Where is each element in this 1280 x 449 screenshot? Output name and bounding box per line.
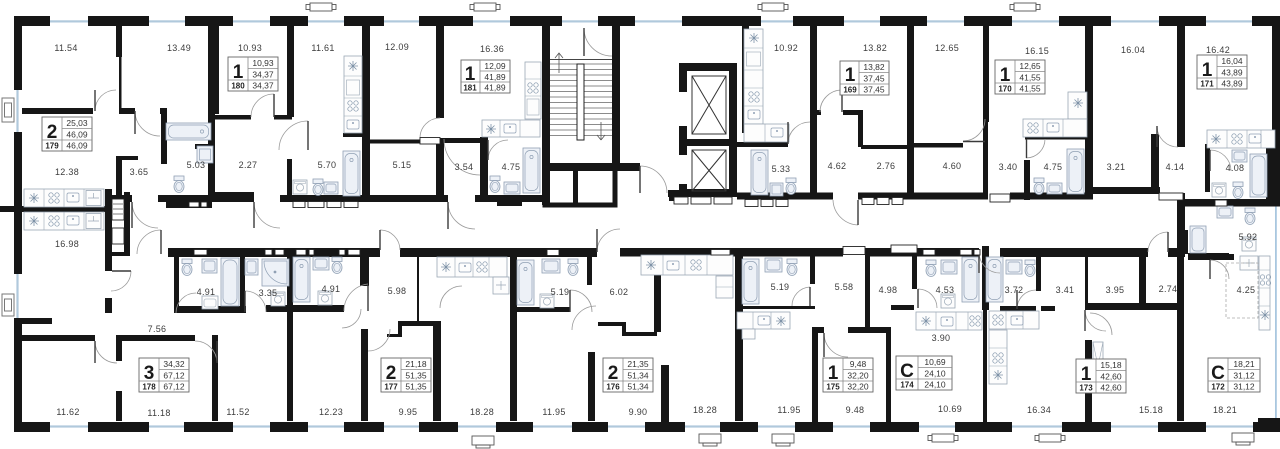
svg-text:10,69: 10,69 (924, 357, 946, 367)
svg-text:67,12: 67,12 (163, 382, 185, 392)
svg-text:16,04: 16,04 (1221, 56, 1243, 66)
svg-text:4.60: 4.60 (943, 161, 962, 171)
svg-text:51,34: 51,34 (627, 371, 649, 381)
svg-text:C: C (900, 361, 914, 382)
svg-text:5.19: 5.19 (771, 282, 790, 292)
svg-text:3.95: 3.95 (1106, 285, 1125, 295)
svg-text:3: 3 (144, 363, 155, 384)
svg-text:34,32: 34,32 (163, 359, 185, 369)
svg-text:3.54: 3.54 (455, 162, 474, 172)
svg-text:6.02: 6.02 (610, 287, 629, 297)
svg-text:34,37: 34,37 (252, 81, 274, 91)
svg-text:1: 1 (845, 65, 856, 86)
svg-text:4.75: 4.75 (502, 162, 521, 172)
svg-text:1: 1 (1081, 364, 1092, 385)
svg-text:11.54: 11.54 (54, 43, 77, 53)
svg-text:7.56: 7.56 (148, 324, 167, 334)
svg-text:176: 176 (606, 383, 620, 392)
svg-text:34,37: 34,37 (252, 70, 274, 80)
svg-text:12.09: 12.09 (385, 42, 409, 52)
svg-text:51,34: 51,34 (627, 382, 649, 392)
svg-text:41,55: 41,55 (1019, 73, 1041, 83)
svg-text:16.34: 16.34 (1027, 405, 1051, 415)
svg-text:5.70: 5.70 (318, 160, 337, 170)
svg-text:43,89: 43,89 (1221, 79, 1243, 89)
svg-text:5.03: 5.03 (187, 160, 206, 170)
svg-text:16.04: 16.04 (1121, 45, 1145, 55)
svg-text:11.52: 11.52 (226, 407, 249, 417)
svg-text:10.92: 10.92 (774, 43, 798, 53)
svg-text:10.69: 10.69 (938, 404, 962, 414)
svg-text:2.74: 2.74 (1159, 284, 1178, 294)
svg-text:5.92: 5.92 (1239, 232, 1258, 242)
svg-text:178: 178 (142, 383, 156, 392)
svg-text:4.91: 4.91 (197, 287, 216, 297)
svg-text:11.61: 11.61 (311, 43, 334, 53)
svg-text:9.48: 9.48 (846, 405, 865, 415)
svg-text:1: 1 (828, 363, 839, 384)
svg-text:51,35: 51,35 (405, 371, 427, 381)
svg-text:179: 179 (45, 142, 59, 151)
svg-text:2.76: 2.76 (877, 161, 896, 171)
svg-text:C: C (1211, 363, 1225, 384)
svg-text:2.27: 2.27 (239, 160, 258, 170)
svg-text:5.15: 5.15 (393, 160, 412, 170)
svg-text:21,18: 21,18 (405, 359, 427, 369)
svg-text:4.08: 4.08 (1226, 163, 1245, 173)
svg-text:9.95: 9.95 (399, 407, 418, 417)
svg-text:16.98: 16.98 (55, 239, 79, 249)
svg-text:9,48: 9,48 (850, 359, 867, 369)
svg-text:18.28: 18.28 (470, 407, 494, 417)
svg-text:4.91: 4.91 (322, 284, 341, 294)
svg-text:5.19: 5.19 (551, 287, 570, 297)
svg-text:169: 169 (843, 86, 857, 95)
svg-text:16.36: 16.36 (480, 44, 504, 54)
svg-text:18,21: 18,21 (1233, 359, 1255, 369)
svg-text:9.90: 9.90 (629, 407, 648, 417)
svg-text:32,20: 32,20 (847, 371, 869, 381)
svg-text:3.65: 3.65 (130, 167, 149, 177)
svg-text:2: 2 (386, 363, 397, 384)
svg-text:46,09: 46,09 (66, 130, 88, 140)
svg-text:4.25: 4.25 (1237, 285, 1256, 295)
svg-text:4.53: 4.53 (936, 285, 955, 295)
svg-text:18.28: 18.28 (693, 405, 717, 415)
svg-text:172: 172 (1211, 383, 1225, 392)
svg-text:42,60: 42,60 (1100, 383, 1122, 393)
svg-text:12.65: 12.65 (935, 43, 959, 53)
svg-text:13,82: 13,82 (863, 62, 885, 72)
svg-text:21,35: 21,35 (627, 359, 649, 369)
svg-text:25,03: 25,03 (66, 118, 88, 128)
svg-text:24,10: 24,10 (924, 380, 946, 390)
svg-text:1: 1 (233, 62, 244, 83)
svg-text:67,12: 67,12 (163, 371, 185, 381)
svg-text:12,09: 12,09 (484, 61, 506, 71)
svg-text:5.58: 5.58 (835, 282, 854, 292)
svg-text:10.93: 10.93 (238, 43, 262, 53)
svg-text:10,93: 10,93 (252, 58, 274, 68)
svg-text:15,18: 15,18 (1100, 360, 1122, 370)
svg-text:2: 2 (608, 363, 619, 384)
svg-text:5.33: 5.33 (772, 164, 791, 174)
svg-text:181: 181 (463, 84, 477, 93)
svg-text:41,55: 41,55 (1019, 84, 1041, 94)
svg-text:2: 2 (47, 122, 58, 143)
svg-text:174: 174 (900, 381, 914, 390)
svg-text:4.14: 4.14 (1166, 162, 1185, 172)
svg-text:43,89: 43,89 (1221, 68, 1243, 78)
svg-text:12,65: 12,65 (1019, 61, 1041, 71)
svg-text:16.42: 16.42 (1206, 45, 1230, 55)
svg-text:3.40: 3.40 (999, 162, 1018, 172)
svg-text:15.18: 15.18 (1139, 405, 1163, 415)
svg-text:41,89: 41,89 (484, 83, 506, 93)
svg-text:5.98: 5.98 (388, 286, 407, 296)
svg-text:4.62: 4.62 (828, 161, 847, 171)
svg-text:18.21: 18.21 (1213, 405, 1237, 415)
svg-text:51,35: 51,35 (405, 382, 427, 392)
svg-text:32,20: 32,20 (847, 382, 869, 392)
svg-text:171: 171 (1200, 80, 1214, 89)
svg-text:173: 173 (1079, 384, 1093, 393)
svg-text:3.21: 3.21 (1107, 162, 1126, 172)
svg-text:37,45: 37,45 (863, 74, 885, 84)
svg-text:180: 180 (231, 82, 245, 91)
svg-text:11.18: 11.18 (147, 408, 170, 418)
svg-text:11.62: 11.62 (56, 407, 79, 417)
svg-text:177: 177 (384, 383, 398, 392)
svg-text:11.95: 11.95 (777, 405, 800, 415)
svg-text:16.15: 16.15 (1025, 46, 1049, 56)
svg-text:4.98: 4.98 (879, 285, 898, 295)
svg-text:3.90: 3.90 (932, 333, 951, 343)
svg-text:11.95: 11.95 (542, 407, 565, 417)
svg-text:1: 1 (465, 64, 476, 85)
svg-text:3.72: 3.72 (1005, 285, 1024, 295)
svg-text:12.38: 12.38 (55, 167, 79, 177)
svg-text:31,12: 31,12 (1233, 371, 1255, 381)
svg-text:41,89: 41,89 (484, 72, 506, 82)
svg-text:46,09: 46,09 (66, 141, 88, 151)
svg-text:1: 1 (1202, 60, 1213, 81)
svg-text:37,45: 37,45 (863, 85, 885, 95)
svg-text:175: 175 (826, 383, 840, 392)
svg-text:31,12: 31,12 (1233, 382, 1255, 392)
svg-text:170: 170 (998, 85, 1012, 94)
svg-text:24,10: 24,10 (924, 369, 946, 379)
svg-text:13.49: 13.49 (167, 43, 191, 53)
svg-text:12.23: 12.23 (319, 407, 343, 417)
svg-text:13.82: 13.82 (863, 43, 887, 53)
svg-text:4.75: 4.75 (1044, 162, 1063, 172)
svg-text:1: 1 (1000, 65, 1011, 86)
svg-text:3.35: 3.35 (259, 288, 278, 298)
svg-text:42,60: 42,60 (1100, 372, 1122, 382)
svg-text:3.41: 3.41 (1056, 285, 1075, 295)
